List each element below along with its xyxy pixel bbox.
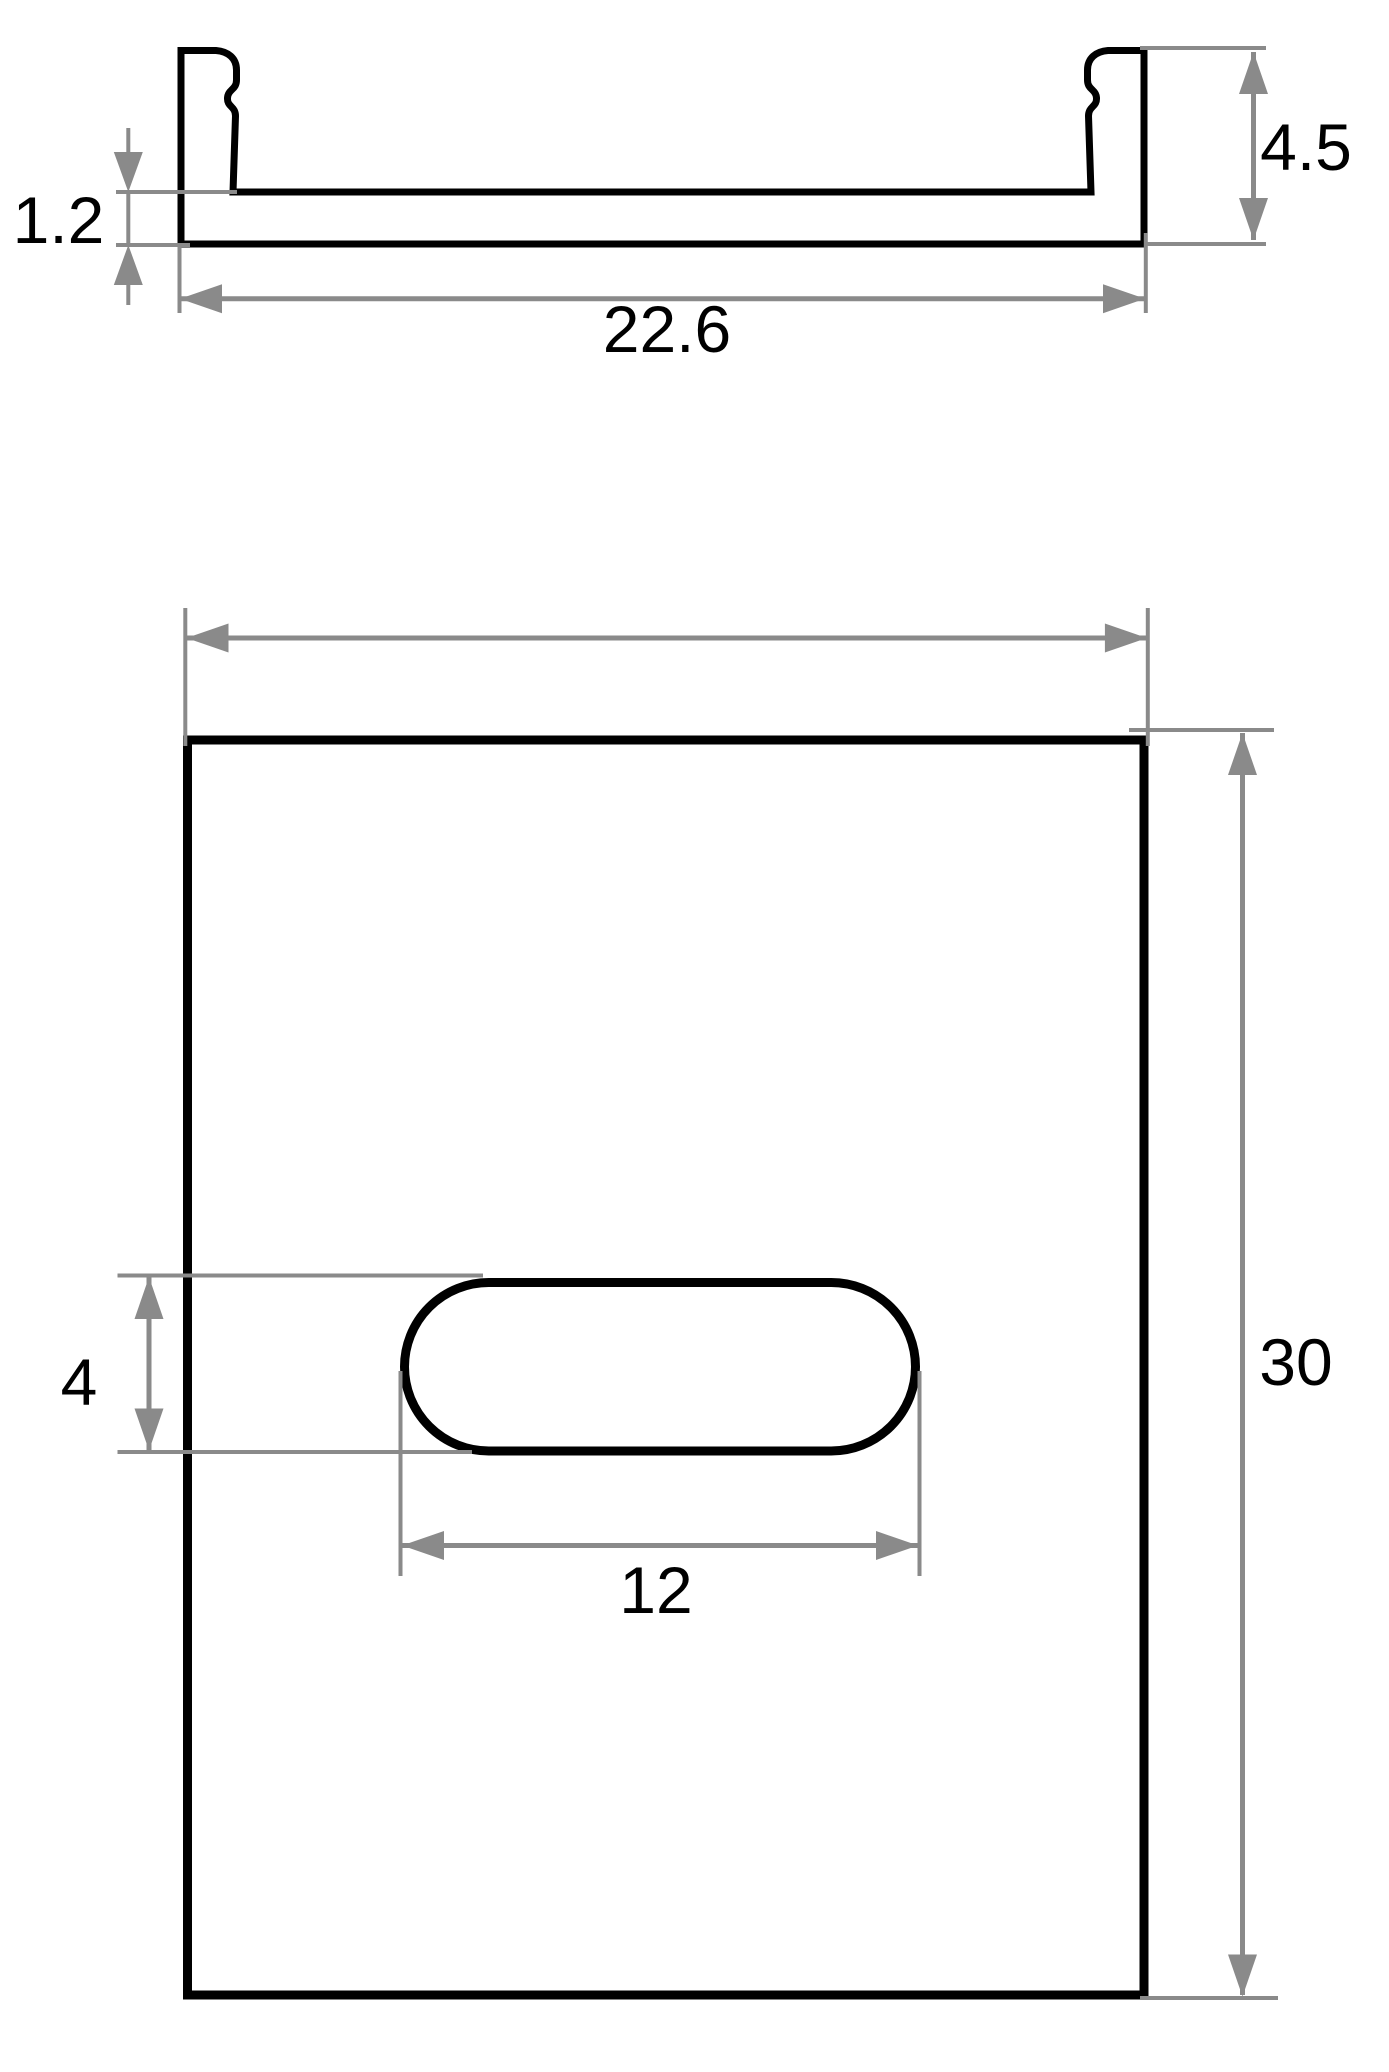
svg-text:4: 4	[61, 1345, 98, 1419]
svg-text:22.6: 22.6	[603, 292, 731, 366]
svg-text:12: 12	[619, 1553, 692, 1627]
svg-text:1.2: 1.2	[13, 183, 105, 257]
svg-text:4.5: 4.5	[1260, 110, 1352, 184]
svg-text:30: 30	[1259, 1325, 1332, 1399]
